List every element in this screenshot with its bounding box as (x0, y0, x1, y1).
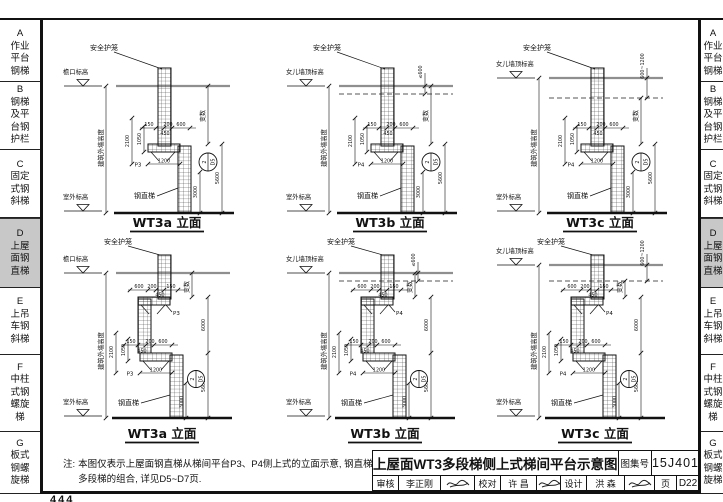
dim-text: D5 (434, 158, 440, 165)
dim-text: 1050 (360, 133, 366, 145)
section-label-line: 上屋 (10, 241, 29, 254)
sidebar-section-B: B钢梯及平台钢护栏 (0, 82, 40, 150)
elevation-marker (77, 267, 89, 274)
frame-left-line (40, 18, 43, 494)
elevation-marker (77, 80, 89, 87)
elevation-title: WT3c 立面 (561, 426, 629, 441)
dim-text: 2100 (558, 135, 564, 147)
dim-text: D5 (422, 375, 428, 382)
sidebar-section-D: D上屋面钢直梯 (0, 218, 40, 288)
dim-text: 150 (166, 284, 175, 290)
dim-text: 600 (609, 122, 618, 128)
wall-height-label: 建筑外墙高度 (96, 331, 105, 369)
signature-scribble (625, 476, 655, 490)
detail-reference-symbol: 2D5 (632, 153, 650, 171)
elevation-marker (77, 410, 89, 417)
roof-elevation-label: 女儿墙顶标高 (496, 246, 534, 255)
outdoor-elevation-label: 室外标高 (496, 397, 521, 406)
dim-text: 150 (367, 122, 376, 128)
dim-text: 450 (160, 131, 169, 137)
section-label-line: 钢梯 (10, 97, 29, 110)
platform (573, 353, 605, 361)
dim-text: 200 (596, 122, 605, 128)
dim-text: 200 (578, 339, 587, 345)
section-label-line: 钢梯 (10, 66, 29, 79)
note-prefix: 注: (63, 457, 75, 487)
dim-text: 1200 (158, 159, 170, 165)
dim-text: 200 (145, 339, 154, 345)
elevation-marker (510, 72, 522, 79)
dim-text: 600 (567, 284, 576, 290)
roof-elevation-label: 女儿墙顶标高 (496, 59, 534, 68)
dim-text: 2 (425, 160, 431, 163)
section-label-line: 及平 (10, 109, 29, 122)
dim-text: 200 (368, 339, 377, 345)
platform-mark: P4 (568, 163, 575, 169)
safety-cage-label: 安全护笼 (90, 43, 118, 52)
section-label-line: 上吊 (10, 309, 29, 322)
safety-cage-label: 安全护笼 (523, 43, 551, 52)
dim-text: 1200 (591, 159, 603, 165)
section-label-line: 式钢 (10, 184, 29, 197)
variable-label: 变数 (422, 110, 430, 122)
dim-text: 6000 (424, 319, 430, 331)
page-number-label: 页 (655, 476, 677, 490)
dim-text: 150 (577, 122, 586, 128)
elevation-title: WT3c 立面 (566, 215, 634, 230)
platform-mark: P4 (560, 372, 567, 378)
detail-reference-symbol: 2D5 (621, 371, 638, 388)
platform-mark: P3 (173, 311, 180, 317)
role-label: 校对 (475, 476, 501, 490)
platform (148, 144, 180, 152)
dim-text: 3000 (612, 396, 618, 408)
ladder-segment (611, 146, 624, 212)
dim-text: 2 (190, 377, 196, 380)
detail-reference-symbol: 2D5 (411, 371, 428, 388)
sheet-title: 上屋面WT3多段梯侧上式梯间平台示意图 (373, 451, 619, 475)
sidebar-section-F: F中柱式钢螺旋梯 (0, 355, 40, 432)
wall-height-label: 建筑外墙高度 (529, 128, 538, 166)
section-label-line: 梯 (15, 412, 25, 425)
elevation-drawing-WT3a-3seg: 檐口标高建筑外墙高度安全护笼600200450150P3150450200600… (62, 233, 282, 460)
atlas-number-label: 图集号 (619, 451, 652, 475)
elevation-marker (510, 410, 522, 417)
dim-text: 200 (163, 122, 172, 128)
dim-text: 600 (591, 339, 600, 345)
dim-text: 600 (176, 122, 185, 128)
section-label-line: 固定 (10, 171, 29, 184)
section-label-line: 护栏 (10, 134, 29, 147)
left-sidebar-index: A作业平台钢梯B钢梯及平台钢护栏C固定式钢斜梯D上屋面钢直梯E上吊车钢斜梯F中柱… (0, 25, 40, 494)
parapet-height-dim: ≤600 (411, 253, 417, 266)
elevation-marker (300, 205, 312, 212)
dim-text: 5600 (438, 172, 444, 184)
dim-text: 1050 (554, 344, 560, 356)
dim-text: 3000 (193, 186, 199, 198)
elevation-title: WT3b 立面 (355, 215, 425, 230)
steel-ladder-label: 钢直梯 (567, 191, 588, 200)
dim-text: 5600 (648, 172, 654, 184)
title-block-bottom-row: 审核李正刚校对许 昌设计洪 森页D22 (373, 476, 699, 490)
ladder-segment (381, 255, 394, 299)
dim-text: 1200 (381, 159, 393, 165)
dim-text: 1200 (373, 368, 385, 374)
dim-text: D5 (644, 158, 650, 165)
ladder-segment (158, 255, 171, 299)
dim-text: 2 (202, 160, 208, 163)
dim-text: D5 (211, 158, 217, 165)
page-number: D22 (677, 476, 699, 490)
dim-text: 150 (144, 122, 153, 128)
safety-cage-label: 安全护笼 (537, 237, 565, 246)
variable-label: 变数 (199, 110, 207, 122)
dim-text: D5 (632, 375, 638, 382)
section-label-line: 钢螺 (10, 463, 29, 476)
dim-text: 200 (147, 284, 156, 290)
roof-elevation-label: 女儿墙顶标高 (286, 67, 324, 76)
dim-text: 2100 (348, 135, 354, 147)
elevation-title: WT3b 立面 (350, 426, 420, 441)
outdoor-elevation-label: 室外标高 (63, 192, 88, 201)
dim-text: 150 (389, 284, 398, 290)
dim-text: 2100 (332, 346, 338, 358)
ladder-segment (178, 146, 191, 212)
wall-height-label: 建筑外墙高度 (319, 331, 328, 369)
variable-label: 变数 (406, 281, 414, 293)
dim-text: 5600 (215, 172, 221, 184)
dim-text: 2 (623, 377, 629, 380)
note: 注: 本图仅表示上屋面钢直梯从梯间平台P3、P4侧上式的立面示意, 钢直梯多段梯… (63, 457, 375, 487)
sidebar-section-A: A作业平台钢梯 (0, 25, 40, 82)
section-label-line: 式钢 (10, 387, 29, 400)
section-label-line: 旋梯 (703, 475, 722, 488)
elevation-drawing-WT3c-3seg: 女儿墙顶标高建筑外墙高度安全护笼600200450150P41504502006… (495, 233, 715, 460)
elevation-marker (300, 267, 312, 274)
dim-text: 600 (158, 339, 167, 345)
ladder-segment (591, 255, 604, 299)
safety-cage-label: 安全护笼 (327, 237, 355, 246)
section-letter: C (17, 159, 24, 172)
section-label-line: 台钢 (10, 122, 29, 135)
dim-text: 3000 (626, 186, 632, 198)
roof-elevation-label: 女儿墙顶标高 (286, 254, 324, 263)
variable-label: 变数 (183, 281, 191, 293)
dim-text: 600 (381, 339, 390, 345)
dim-text: 200 (370, 284, 379, 290)
platform-mark: P4 (606, 311, 613, 317)
section-letter: B (17, 84, 23, 97)
platform-mark: P4 (396, 311, 403, 317)
safety-cage-label: 安全护笼 (313, 43, 341, 52)
section-letter: D (17, 228, 24, 241)
variable-label: 变数 (616, 281, 624, 293)
elevation-marker (510, 205, 522, 212)
section-label-line: 面钢 (10, 253, 29, 266)
steel-ladder-label: 钢直梯 (357, 191, 378, 200)
dim-text: 600 (399, 122, 408, 128)
detail-reference-symbol: 2D5 (422, 153, 440, 171)
sidebar-section-G: G板式钢螺旋梯 (0, 432, 40, 494)
elevation-title: WT3a 立面 (133, 215, 202, 230)
atlas-number: 15J401 (652, 451, 699, 475)
dim-text: 1050 (121, 344, 127, 356)
section-label-line: 斜梯 (10, 196, 29, 209)
role-label: 设计 (561, 476, 587, 490)
bottom-page-number: 444 (50, 494, 74, 502)
sidebar-section-C: C固定式钢斜梯 (0, 150, 40, 218)
section-label-line: 旋梯 (10, 475, 29, 488)
dim-text: 2100 (109, 346, 115, 358)
title-block: 上屋面WT3多段梯侧上式梯间平台示意图 图集号 15J401 审核李正刚校对许 … (372, 450, 700, 491)
role-name: 洪 森 (587, 476, 625, 490)
note-text: 本图仅表示上屋面钢直梯从梯间平台P3、P4侧上式的立面示意, 钢直梯多段梯的组合… (78, 457, 375, 487)
section-label-line: 板式 (10, 450, 29, 463)
dim-text: 450 (593, 131, 602, 137)
section-label-line: 车钢 (10, 321, 29, 334)
platform-mark: P4 (350, 372, 357, 378)
dim-text: 3000 (179, 396, 185, 408)
dim-text: 1200 (150, 368, 162, 374)
wall-height-label: 建筑外墙高度 (529, 331, 538, 369)
section-label-line: 螺旋 (10, 399, 29, 412)
parapet-height-dim: ≤600 (418, 65, 424, 78)
dim-text: 1050 (137, 133, 143, 145)
role-label: 审核 (373, 476, 399, 490)
dim-text: 200 (386, 122, 395, 128)
dim-text: 200 (580, 284, 589, 290)
section-label-line: 直梯 (10, 266, 29, 279)
platform (363, 353, 395, 361)
elevation-marker (300, 80, 312, 87)
title-block-top-row: 上屋面WT3多段梯侧上式梯间平台示意图 图集号 15J401 (373, 451, 699, 476)
elevation-drawing-WT3b-2seg: 女儿墙顶标高建筑外墙高度安全护笼150450200600P41200210010… (285, 20, 505, 233)
safety-cage-label: 安全护笼 (104, 237, 132, 246)
outdoor-elevation-label: 室外标高 (496, 192, 521, 201)
dim-text: 3000 (402, 396, 408, 408)
elevation-drawing-WT3a-2seg: 檐口标高建筑外墙高度安全护笼150450200600P3120021001050… (62, 20, 282, 233)
section-letter: E (17, 296, 23, 309)
platform (140, 353, 172, 361)
role-name: 李正刚 (399, 476, 441, 490)
role-name: 许 昌 (501, 476, 537, 490)
section-label-line: 斜梯 (10, 334, 29, 347)
variable-label: 变数 (632, 110, 640, 122)
section-letter: G (16, 438, 23, 451)
section-label-line: 平台 (10, 53, 29, 66)
wall-height-label: 建筑外墙高度 (319, 128, 328, 166)
ladder-segment (401, 146, 414, 212)
parapet-height-dim: 600~1200 (640, 240, 646, 265)
elevation-drawing-WT3c-2seg: 女儿墙顶标高建筑外墙高度安全护笼150450200600P41200210010… (495, 20, 715, 233)
signature-scribble (537, 476, 561, 490)
dim-text: 150 (599, 284, 608, 290)
wall-height-label: 建筑外墙高度 (96, 128, 105, 166)
dim-text: 6000 (201, 319, 207, 331)
dim-text: 2100 (542, 346, 548, 358)
outdoor-elevation-label: 室外标高 (286, 192, 311, 201)
outdoor-elevation-label: 室外标高 (63, 397, 88, 406)
elevation-marker (510, 259, 522, 266)
dim-text: 1050 (344, 344, 350, 356)
roof-elevation-label: 檐口标高 (63, 67, 88, 76)
roof-elevation-label: 檐口标高 (63, 254, 88, 263)
platform (581, 144, 613, 152)
steel-ladder-label: 钢直梯 (118, 398, 139, 407)
atlas-page: A作业平台钢梯B钢梯及平台钢护栏C固定式钢斜梯D上屋面钢直梯E上吊车钢斜梯F中柱… (0, 0, 723, 502)
section-label-line: 钢螺 (703, 463, 722, 476)
detail-reference-symbol: 2D5 (188, 371, 205, 388)
dim-text: 600 (134, 284, 143, 290)
dim-text: 2100 (125, 135, 131, 147)
steel-ladder-label: 钢直梯 (341, 398, 362, 407)
dim-text: 2 (635, 160, 641, 163)
detail-reference-symbol: 2D5 (199, 153, 217, 171)
sidebar-section-E: E上吊车钢斜梯 (0, 288, 40, 355)
section-letter: F (17, 362, 23, 375)
parapet-height-dim: 600~1200 (640, 53, 646, 78)
elevation-drawing-WT3b-3seg: 女儿墙顶标高建筑外墙高度安全护笼600200450150P41504502006… (285, 233, 505, 460)
elevation-marker (77, 205, 89, 212)
dim-text: 1050 (570, 133, 576, 145)
platform-mark: P3 (135, 163, 142, 169)
dim-text: D5 (199, 375, 205, 382)
dim-text: 2 (413, 377, 419, 380)
dim-text: 3000 (416, 186, 422, 198)
dim-text: 600 (357, 284, 366, 290)
steel-ladder-label: 钢直梯 (551, 398, 572, 407)
dim-text: 450 (383, 131, 392, 137)
section-label-line: 中柱 (10, 374, 29, 387)
outdoor-elevation-label: 室外标高 (286, 397, 311, 406)
elevation-title: WT3a 立面 (128, 426, 197, 441)
dim-text: 1200 (583, 368, 595, 374)
platform-mark: P3 (127, 372, 134, 378)
frame-bottom-line (40, 491, 701, 494)
platform (371, 144, 403, 152)
elevation-marker (300, 410, 312, 417)
signature-scribble (441, 476, 475, 490)
section-label-line: 作业 (10, 41, 29, 54)
platform-mark: P4 (358, 163, 365, 169)
steel-ladder-label: 钢直梯 (134, 191, 155, 200)
dim-text: 6000 (634, 319, 640, 331)
section-letter: A (17, 28, 23, 41)
